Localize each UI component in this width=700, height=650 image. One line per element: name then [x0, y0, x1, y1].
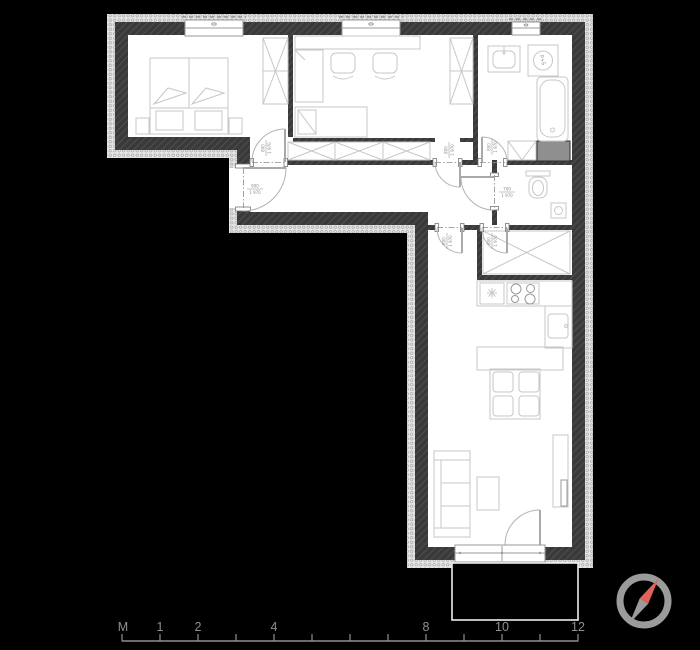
svg-text:700: 700: [503, 187, 511, 192]
svg-text:1 970: 1 970: [501, 193, 513, 198]
svg-text:900: 900: [251, 184, 259, 189]
nightstand-right: [229, 118, 242, 134]
double-bed: [150, 58, 228, 134]
svg-text:1 970: 1 970: [493, 141, 498, 153]
nightstand-left: [136, 118, 149, 134]
scale-unit-label: M: [118, 620, 128, 634]
svg-text:1 970: 1 970: [493, 235, 498, 247]
dining-chair: [519, 396, 539, 416]
svg-text:800: 800: [442, 237, 447, 245]
window-office: [342, 20, 400, 36]
svg-text:1 970: 1 970: [448, 235, 453, 247]
scale-tick-label: 2: [195, 620, 202, 634]
scale-tick-label: 8: [423, 620, 430, 634]
svg-text:800: 800: [487, 143, 492, 151]
balcony: [452, 563, 578, 620]
window-bedroom: [185, 20, 243, 36]
floor-plan-svg: P+S: [0, 0, 700, 650]
svg-text:1 970: 1 970: [450, 144, 455, 156]
svg-text:800: 800: [487, 237, 492, 245]
dining-chair: [519, 372, 539, 392]
svg-text:1 970: 1 970: [249, 190, 261, 195]
svg-text:800: 800: [444, 146, 449, 154]
dining-chair: [493, 372, 513, 392]
window-bathroom: [512, 22, 540, 35]
scale-tick-label: 12: [571, 620, 585, 634]
sink-star-icon: [487, 288, 497, 298]
svg-text:1 970: 1 970: [267, 142, 272, 154]
svg-text:800: 800: [261, 144, 266, 152]
scale-tick-label: 4: [271, 620, 278, 634]
dining-chair: [493, 396, 513, 416]
installation-shaft: [537, 141, 570, 161]
scale-tick-label: 10: [495, 620, 509, 634]
scale-tick-label: 1: [157, 620, 164, 634]
